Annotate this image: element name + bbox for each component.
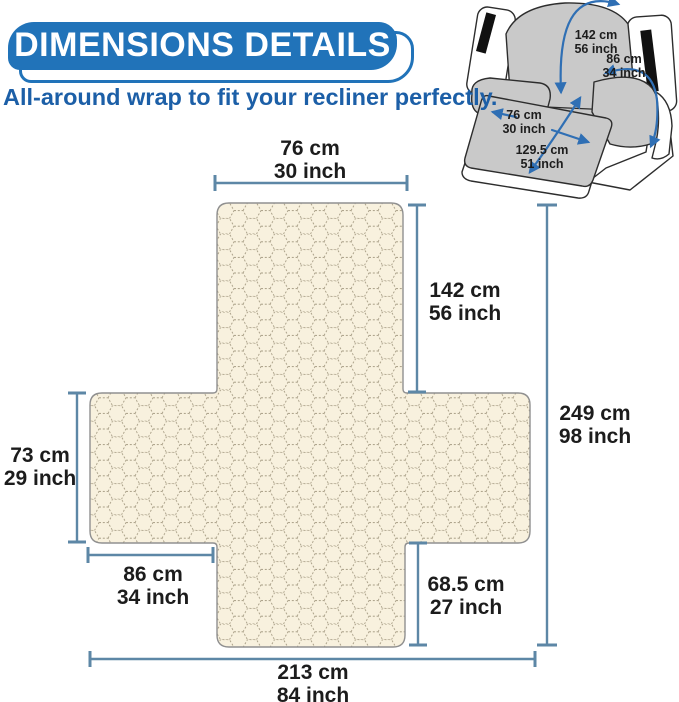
dim-inch-value: 27 inch xyxy=(401,596,531,619)
dim-line-left-wing-width xyxy=(88,547,213,563)
dim-inch-value: 84 inch xyxy=(243,684,383,702)
dim-label-total-width: 213 cm 84 inch xyxy=(243,661,383,702)
dim-label-top-width: 76 cm 30 inch xyxy=(240,137,380,183)
dim-inch-value: 30 inch xyxy=(240,160,380,183)
dim-cm-value: 86 cm xyxy=(83,563,223,586)
dim-label-left-wing-height: 73 cm 29 inch xyxy=(0,444,80,490)
dim-cm-value: 76 cm xyxy=(488,109,560,123)
page-subtitle: All-around wrap to fit your recliner per… xyxy=(3,84,523,111)
dim-cm-value: 213 cm xyxy=(243,661,383,684)
dim-cm-value: 142 cm xyxy=(415,279,515,302)
dim-inch-value: 34 inch xyxy=(588,67,660,81)
banner: DIMENSIONS DETAILS xyxy=(8,22,397,70)
recliner-label-footrest-width: 76 cm 30 inch xyxy=(488,109,560,136)
dim-inch-value: 30 inch xyxy=(488,123,560,137)
dim-inch-value: 98 inch xyxy=(545,425,645,448)
dim-cm-value: 86 cm xyxy=(588,53,660,67)
dim-cm-value: 129.5 cm xyxy=(496,144,588,158)
page: DIMENSIONS DETAILS All-around wrap to fi… xyxy=(0,0,679,702)
dim-cm-value: 73 cm xyxy=(0,444,80,467)
dim-inch-value: 29 inch xyxy=(0,467,80,490)
dim-label-left-wing-width: 86 cm 34 inch xyxy=(83,563,223,609)
dim-cm-value: 76 cm xyxy=(240,137,380,160)
dim-inch-value: 56 inch xyxy=(415,302,515,325)
page-title: DIMENSIONS DETAILS xyxy=(14,26,391,65)
recliner-label-seat-length: 129.5 cm 51 inch xyxy=(496,144,588,171)
dim-cm-value: 68.5 cm xyxy=(401,573,531,596)
dim-label-total-height: 249 cm 98 inch xyxy=(545,402,645,448)
dim-cm-value: 142 cm xyxy=(558,29,634,43)
recliner-label-arm-wrap: 86 cm 34 inch xyxy=(588,53,660,80)
dim-cm-value: 249 cm xyxy=(545,402,645,425)
dim-label-back-height: 142 cm 56 inch xyxy=(415,279,515,325)
dim-inch-value: 34 inch xyxy=(83,586,223,609)
dim-label-bottom-right-height: 68.5 cm 27 inch xyxy=(401,573,531,619)
dim-inch-value: 51 inch xyxy=(496,158,588,172)
